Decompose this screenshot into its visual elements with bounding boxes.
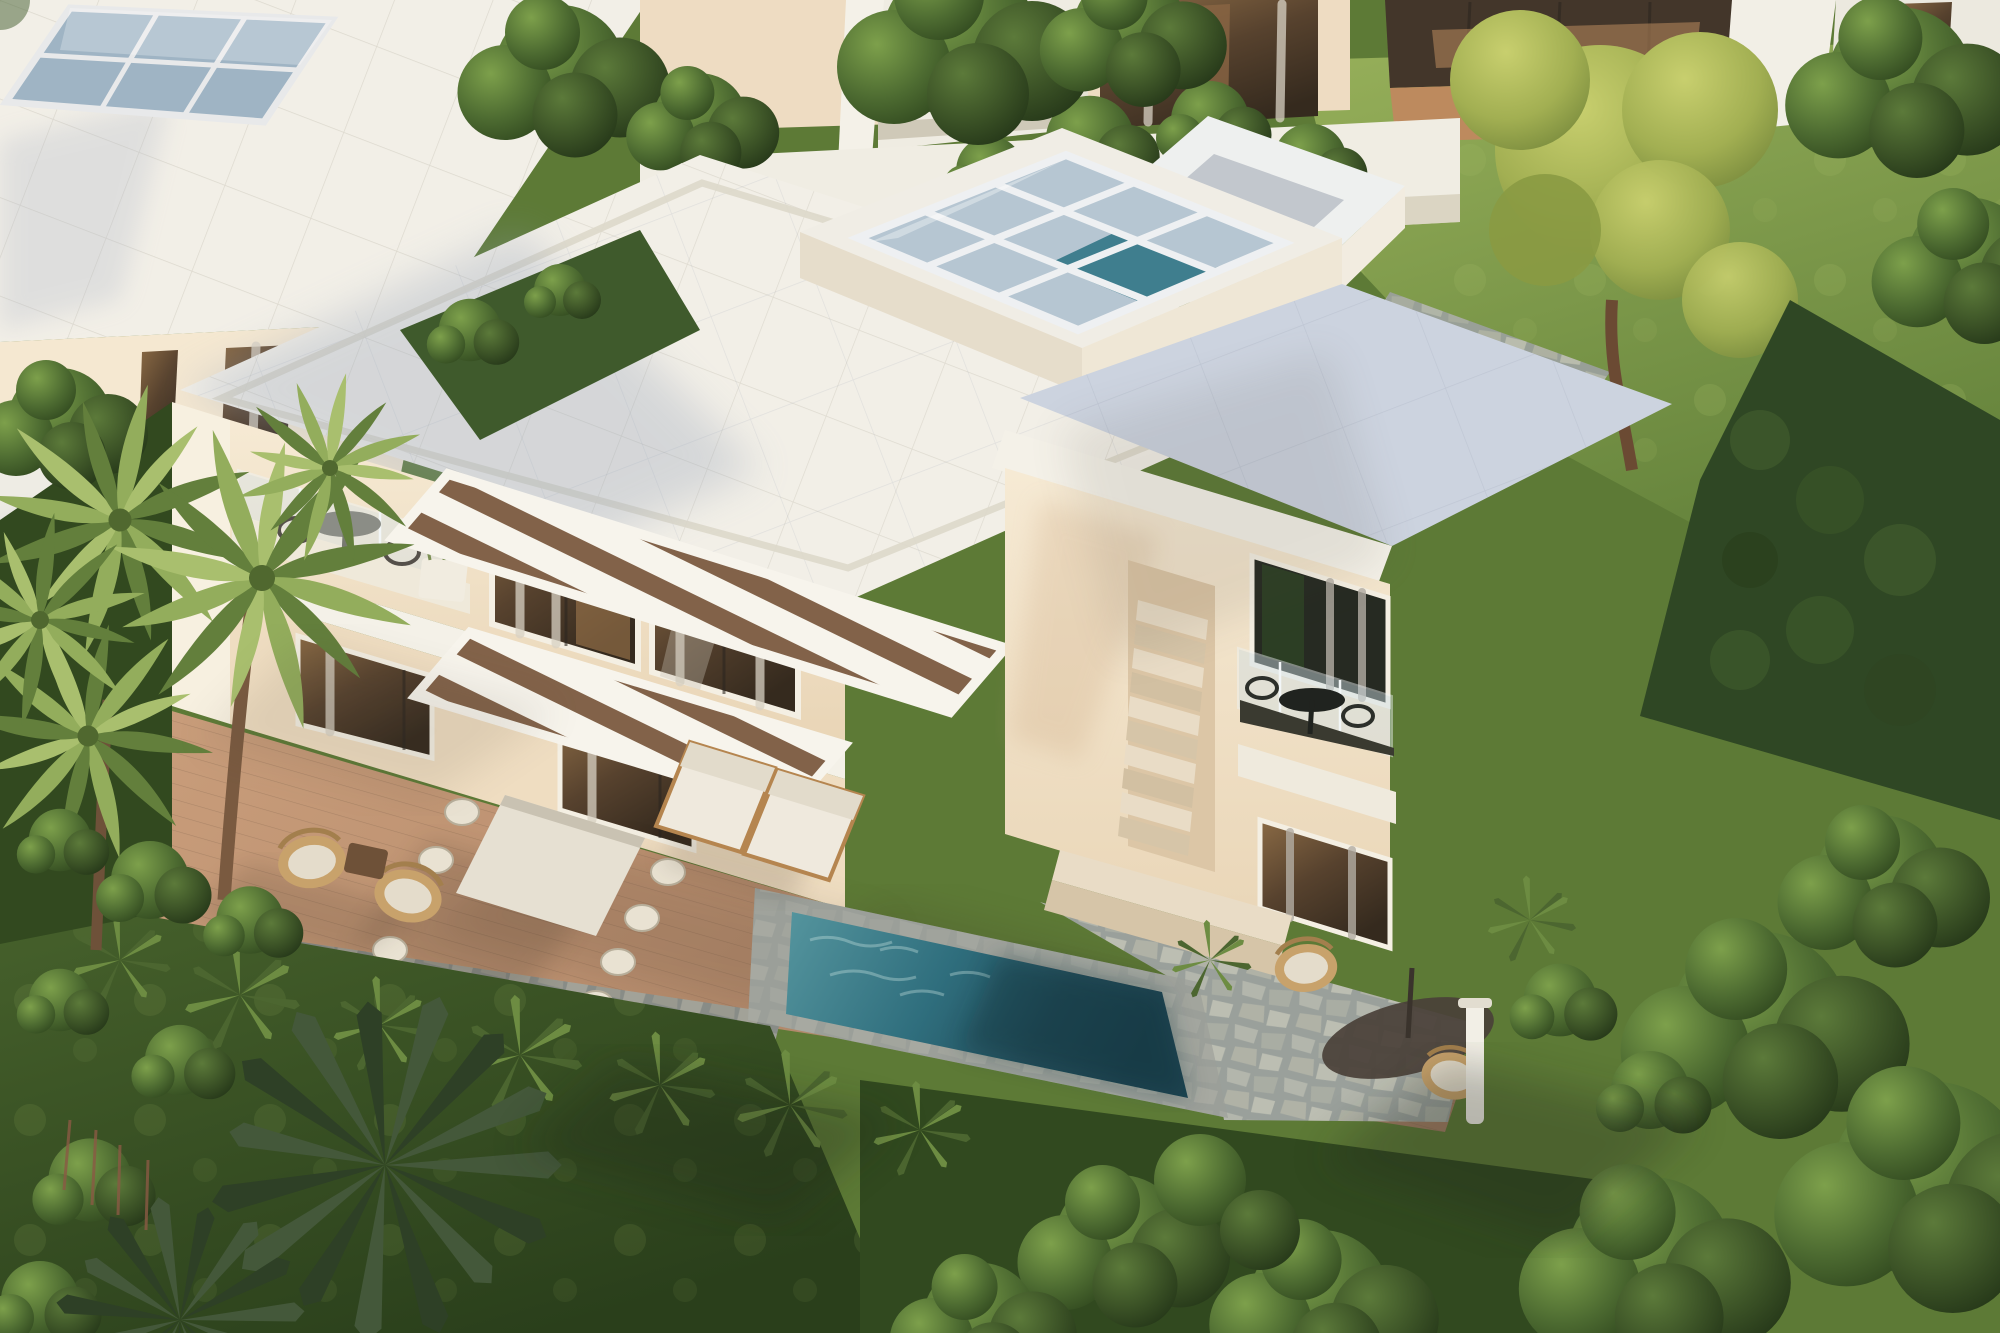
outdoor-shower-head: [1458, 998, 1492, 1008]
rendering-canvas: [0, 0, 2000, 1333]
balcony-planter: [418, 558, 468, 603]
aerial-villa-rendering: [0, 0, 2000, 1333]
